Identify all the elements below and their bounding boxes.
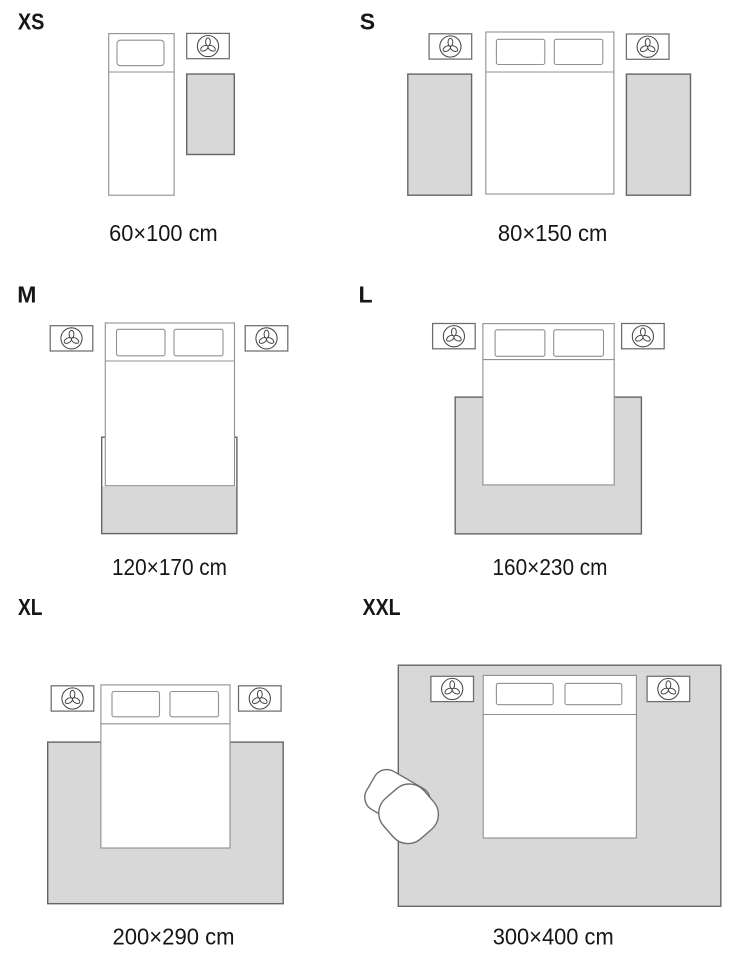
svg-text:200×290 cm: 200×290 cm [113, 923, 235, 949]
svg-text:160×230 cm: 160×230 cm [493, 554, 608, 580]
svg-text:L: L [359, 281, 373, 307]
svg-text:80×150 cm: 80×150 cm [498, 220, 608, 246]
svg-text:XS: XS [18, 9, 45, 35]
svg-text:300×400 cm: 300×400 cm [493, 923, 614, 949]
svg-text:XXL: XXL [363, 594, 401, 620]
svg-text:60×100 cm: 60×100 cm [109, 220, 218, 246]
svg-text:M: M [17, 281, 36, 307]
svg-text:120×170 cm: 120×170 cm [112, 554, 227, 580]
svg-text:XL: XL [18, 594, 43, 620]
svg-text:S: S [360, 9, 375, 35]
